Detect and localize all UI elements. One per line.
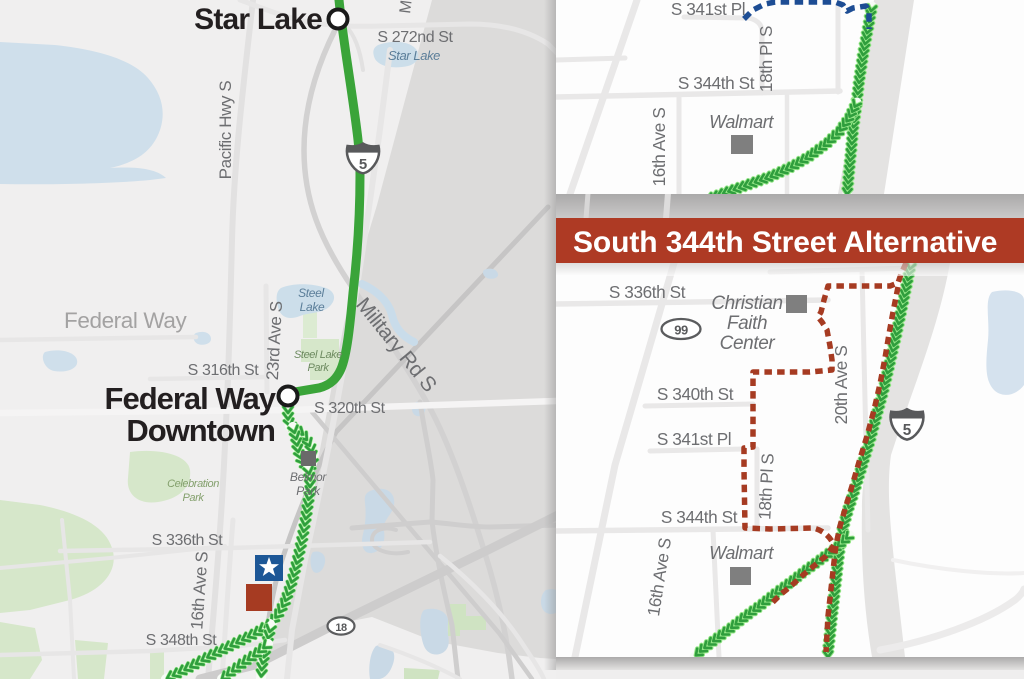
svg-text:Pacific Hwy S: Pacific Hwy S [216,81,235,180]
svg-text:18: 18 [335,622,347,634]
svg-text:S 344th St: S 344th St [678,73,755,93]
svg-text:Steel Lake: Steel Lake [294,349,342,361]
svg-text:S 320th St: S 320th St [314,400,386,417]
svg-text:Celebration: Celebration [167,478,219,490]
svg-text:Center: Center [720,333,776,354]
svg-text:S 316th St: S 316th St [188,362,260,379]
svg-text:Lake: Lake [300,300,325,314]
svg-text:Walmart: Walmart [709,543,774,563]
svg-text:5: 5 [903,422,912,439]
svg-text:Federal Way: Federal Way [105,381,277,416]
svg-text:M: M [397,0,415,14]
svg-text:South 344th Street Alternative: South 344th Street Alternative [573,226,997,259]
svg-text:Star Lake: Star Lake [194,3,322,36]
svg-text:Steel: Steel [298,286,324,300]
svg-text:20th Ave S: 20th Ave S [831,346,851,425]
svg-text:S 348th St: S 348th St [146,632,218,649]
svg-text:Park: Park [307,362,329,374]
svg-text:Park: Park [182,492,204,504]
svg-text:18th Pl S: 18th Pl S [754,453,777,520]
svg-text:5: 5 [359,156,367,173]
svg-text:S 336th St: S 336th St [609,282,686,302]
svg-text:18th Pl S: 18th Pl S [756,26,776,92]
svg-text:Christian: Christian [711,293,782,314]
svg-text:Federal Way: Federal Way [64,308,187,333]
svg-text:Belmor: Belmor [290,470,328,484]
svg-text:S 341st Pl: S 341st Pl [671,0,745,19]
svg-text:99: 99 [674,323,688,338]
svg-text:S 272nd St: S 272nd St [377,29,453,46]
svg-text:16th Ave S: 16th Ave S [649,108,669,187]
svg-text:S 341st Pl: S 341st Pl [657,429,731,449]
svg-text:S 344th St: S 344th St [661,507,738,527]
svg-text:S 340th St: S 340th St [657,384,734,404]
svg-text:Downtown: Downtown [126,413,275,448]
svg-text:Star Lake: Star Lake [388,48,440,63]
svg-text:Faith: Faith [727,313,767,334]
svg-text:Walmart: Walmart [709,112,774,132]
svg-text:Park: Park [296,484,321,498]
svg-text:S 336th St: S 336th St [152,532,224,549]
